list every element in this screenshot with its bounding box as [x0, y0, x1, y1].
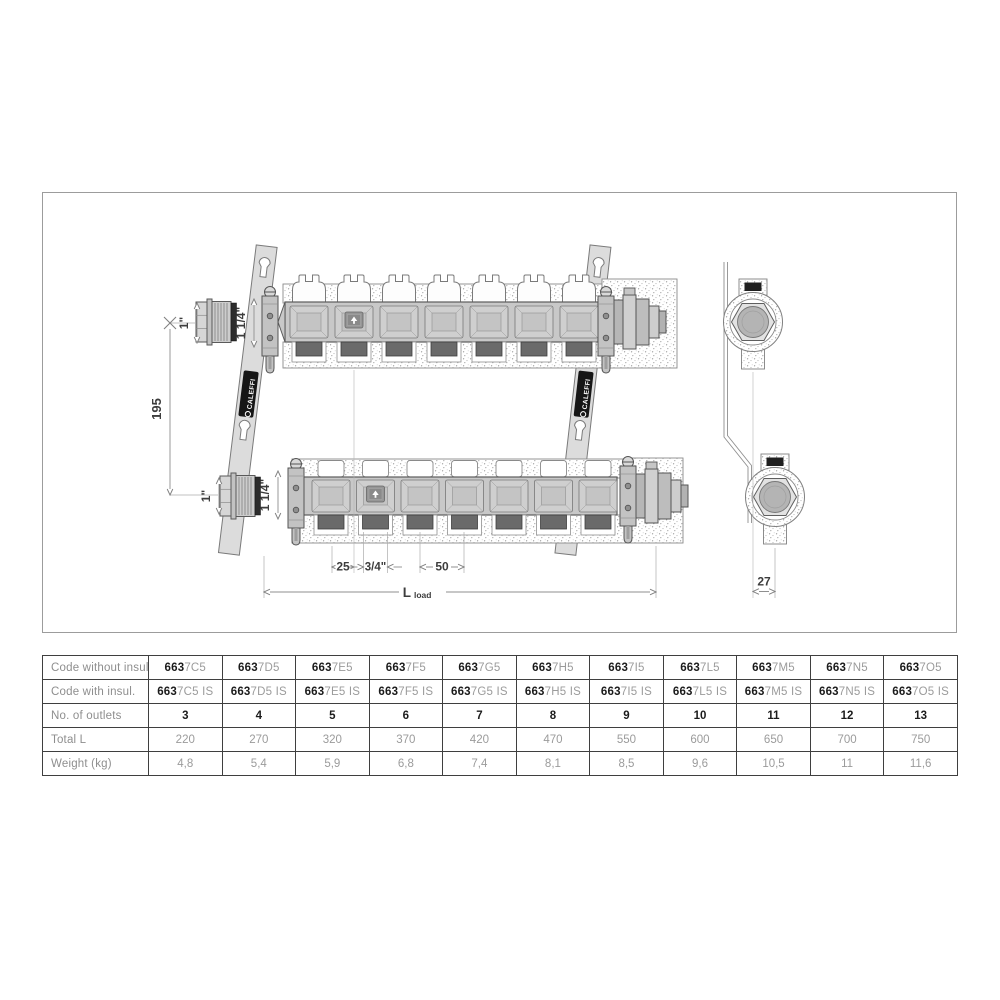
code-insul-cell: 6637M5 IS	[737, 680, 811, 704]
weight-cell: 4,8	[149, 752, 223, 776]
outlets-cell: 13	[884, 704, 958, 728]
total-l-cell: 700	[810, 728, 884, 752]
outlets-cell: 5	[296, 704, 370, 728]
code-insul-cell: 6637D5 IS	[222, 680, 296, 704]
total-l-cell: 470	[516, 728, 590, 752]
code-insul-cell: 6637H5 IS	[516, 680, 590, 704]
row-label: Code without insul.	[43, 656, 149, 680]
spec-table: Code without insul.6637C56637D56637E5663…	[42, 655, 958, 776]
outlets-cell: 10	[663, 704, 737, 728]
code-insul-cell: 6637O5 IS	[884, 680, 958, 704]
row-label: Weight (kg)	[43, 752, 149, 776]
code-insul-cell: 6637L5 IS	[663, 680, 737, 704]
outlets-cell: 12	[810, 704, 884, 728]
code-cell: 6637D5	[222, 656, 296, 680]
row-label: Total L	[43, 728, 149, 752]
outlets-cell: 11	[737, 704, 811, 728]
outlets-cell: 9	[590, 704, 664, 728]
outlets-cell: 3	[149, 704, 223, 728]
code-insul-cell: 6637C5 IS	[149, 680, 223, 704]
total-l-cell: 550	[590, 728, 664, 752]
dim-center-distance: 195	[149, 398, 164, 420]
datasheet-page: CALEFFI CALEFFI	[0, 0, 1000, 1000]
dim-inlet-top: 1"	[177, 317, 191, 329]
weight-cell: 7,4	[443, 752, 517, 776]
code-cell: 6637C5	[149, 656, 223, 680]
dim-outlet-pitch: 50	[435, 560, 449, 574]
code-cell: 6637N5	[810, 656, 884, 680]
total-l-cell: 420	[443, 728, 517, 752]
spec-row: Code with insul.6637C5 IS6637D5 IS6637E5…	[43, 680, 958, 704]
dim-manifold-bottom: 1 1/4"	[258, 479, 272, 511]
code-cell: 6637E5	[296, 656, 370, 680]
row-label: Code with insul.	[43, 680, 149, 704]
outlets-cell: 6	[369, 704, 443, 728]
code-insul-cell: 6637N5 IS	[810, 680, 884, 704]
total-l-cell: 270	[222, 728, 296, 752]
caleffi-emblem-bottom	[367, 486, 385, 502]
outlets-cell: 8	[516, 704, 590, 728]
weight-cell: 5,9	[296, 752, 370, 776]
weight-cell: 11,6	[884, 752, 958, 776]
total-l-cell: 320	[296, 728, 370, 752]
code-cell: 6637L5	[663, 656, 737, 680]
code-cell: 6637M5	[737, 656, 811, 680]
code-cell: 6637O5	[884, 656, 958, 680]
dim-manifold-top: 1 1/4"	[234, 307, 248, 339]
dim-total-length: L	[403, 585, 411, 600]
code-cell: 6637F5	[369, 656, 443, 680]
weight-cell: 11	[810, 752, 884, 776]
code-insul-cell: 6637F5 IS	[369, 680, 443, 704]
spec-table-body: Code without insul.6637C56637D56637E5663…	[43, 656, 958, 776]
drawing-frame	[43, 193, 957, 633]
dim-outlet-connection: 3/4"	[365, 562, 386, 574]
weight-cell: 9,6	[663, 752, 737, 776]
dim-inlet-bottom: 1"	[199, 490, 213, 502]
weight-cell: 10,5	[737, 752, 811, 776]
code-insul-cell: 6637I5 IS	[590, 680, 664, 704]
technical-drawing: CALEFFI CALEFFI	[0, 0, 1000, 650]
total-l-cell: 220	[149, 728, 223, 752]
total-l-cell: 600	[663, 728, 737, 752]
row-label: No. of outlets	[43, 704, 149, 728]
dim-total-length-sub: load	[414, 590, 431, 600]
spec-row: Weight (kg)4,85,45,96,87,48,18,59,610,51…	[43, 752, 958, 776]
dim-depth-offset: 27	[757, 575, 771, 589]
weight-cell: 8,5	[590, 752, 664, 776]
code-cell: 6637H5	[516, 656, 590, 680]
spec-row: No. of outlets345678910111213	[43, 704, 958, 728]
total-l-cell: 370	[369, 728, 443, 752]
caleffi-emblem-top	[345, 312, 363, 328]
dim-outlet-offset: 25	[336, 560, 350, 574]
code-cell: 6637I5	[590, 656, 664, 680]
top-manifold-front-view	[196, 275, 677, 373]
weight-cell: 8,1	[516, 752, 590, 776]
total-l-cell: 750	[884, 728, 958, 752]
weight-cell: 5,4	[222, 752, 296, 776]
code-insul-cell: 6637G5 IS	[443, 680, 517, 704]
code-insul-cell: 6637E5 IS	[296, 680, 370, 704]
top-end-plug	[196, 299, 237, 345]
spec-row: Total L220270320370420470550600650700750	[43, 728, 958, 752]
outlets-cell: 7	[443, 704, 517, 728]
outlets-cell: 4	[222, 704, 296, 728]
total-l-cell: 650	[737, 728, 811, 752]
code-cell: 6637G5	[443, 656, 517, 680]
bottom-end-plug	[220, 473, 261, 519]
spec-row: Code without insul.6637C56637D56637E5663…	[43, 656, 958, 680]
weight-cell: 6,8	[369, 752, 443, 776]
